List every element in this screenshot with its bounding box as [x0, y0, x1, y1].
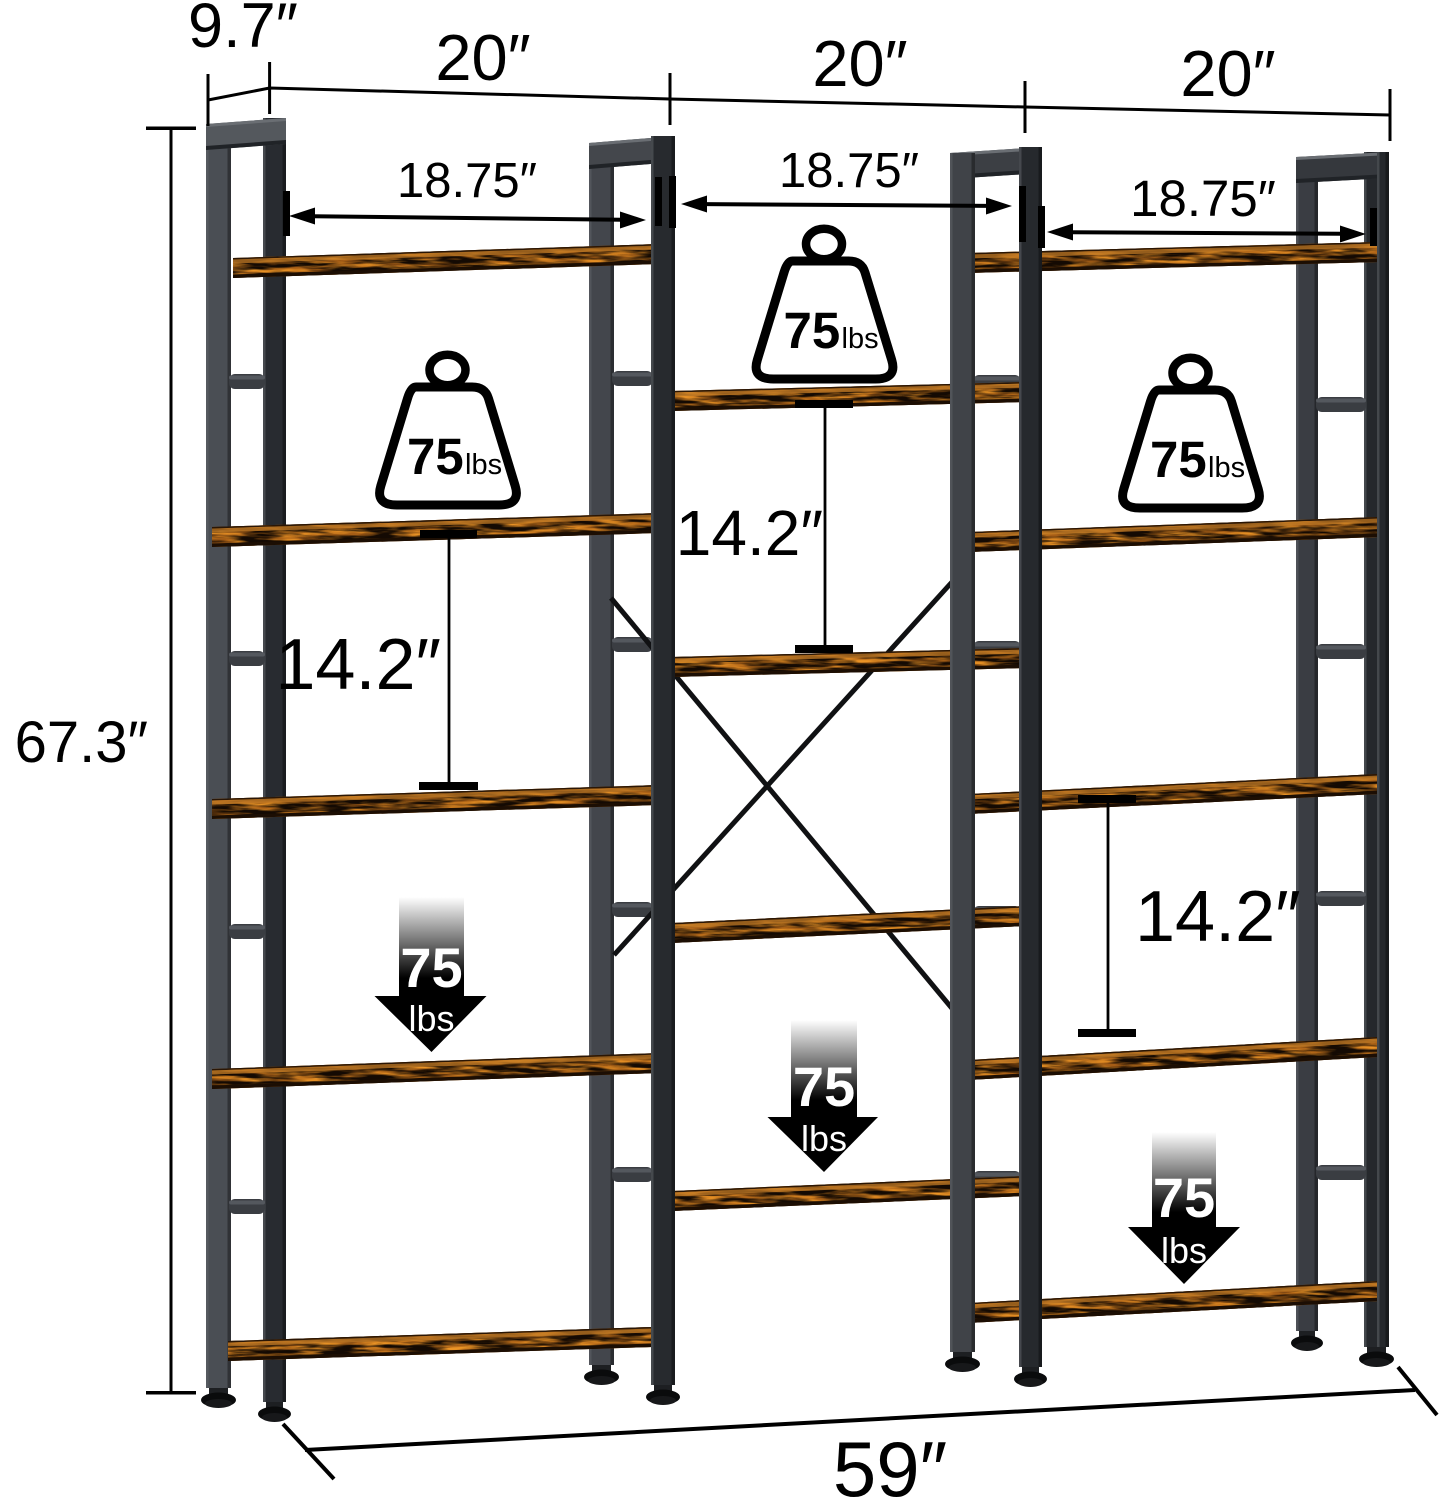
svg-text:lbs: lbs — [408, 998, 454, 1039]
svg-text:18.75″: 18.75″ — [1130, 170, 1276, 227]
svg-text:lbs: lbs — [465, 449, 502, 481]
svg-text:75: 75 — [400, 936, 462, 999]
svg-text:20″: 20″ — [1180, 37, 1275, 110]
svg-text:20″: 20″ — [812, 27, 907, 100]
svg-text:14.2″: 14.2″ — [1135, 877, 1301, 957]
svg-text:59″: 59″ — [833, 1425, 947, 1500]
svg-text:18.75″: 18.75″ — [779, 144, 919, 198]
svg-text:lbs: lbs — [1208, 452, 1245, 484]
svg-text:9.7″: 9.7″ — [188, 0, 298, 61]
svg-text:75: 75 — [793, 1055, 855, 1118]
svg-text:67.3″: 67.3″ — [15, 710, 148, 775]
svg-text:lbs: lbs — [842, 323, 879, 355]
svg-text:75: 75 — [1150, 431, 1207, 488]
svg-text:75: 75 — [407, 428, 464, 485]
svg-text:lbs: lbs — [801, 1118, 847, 1159]
svg-text:14.2″: 14.2″ — [676, 497, 823, 569]
svg-text:20″: 20″ — [435, 21, 530, 94]
svg-text:18.75″: 18.75″ — [397, 154, 537, 208]
svg-text:14.2″: 14.2″ — [275, 625, 441, 705]
svg-text:75: 75 — [1153, 1166, 1215, 1229]
svg-text:lbs: lbs — [1161, 1230, 1207, 1271]
svg-text:75: 75 — [784, 302, 841, 359]
